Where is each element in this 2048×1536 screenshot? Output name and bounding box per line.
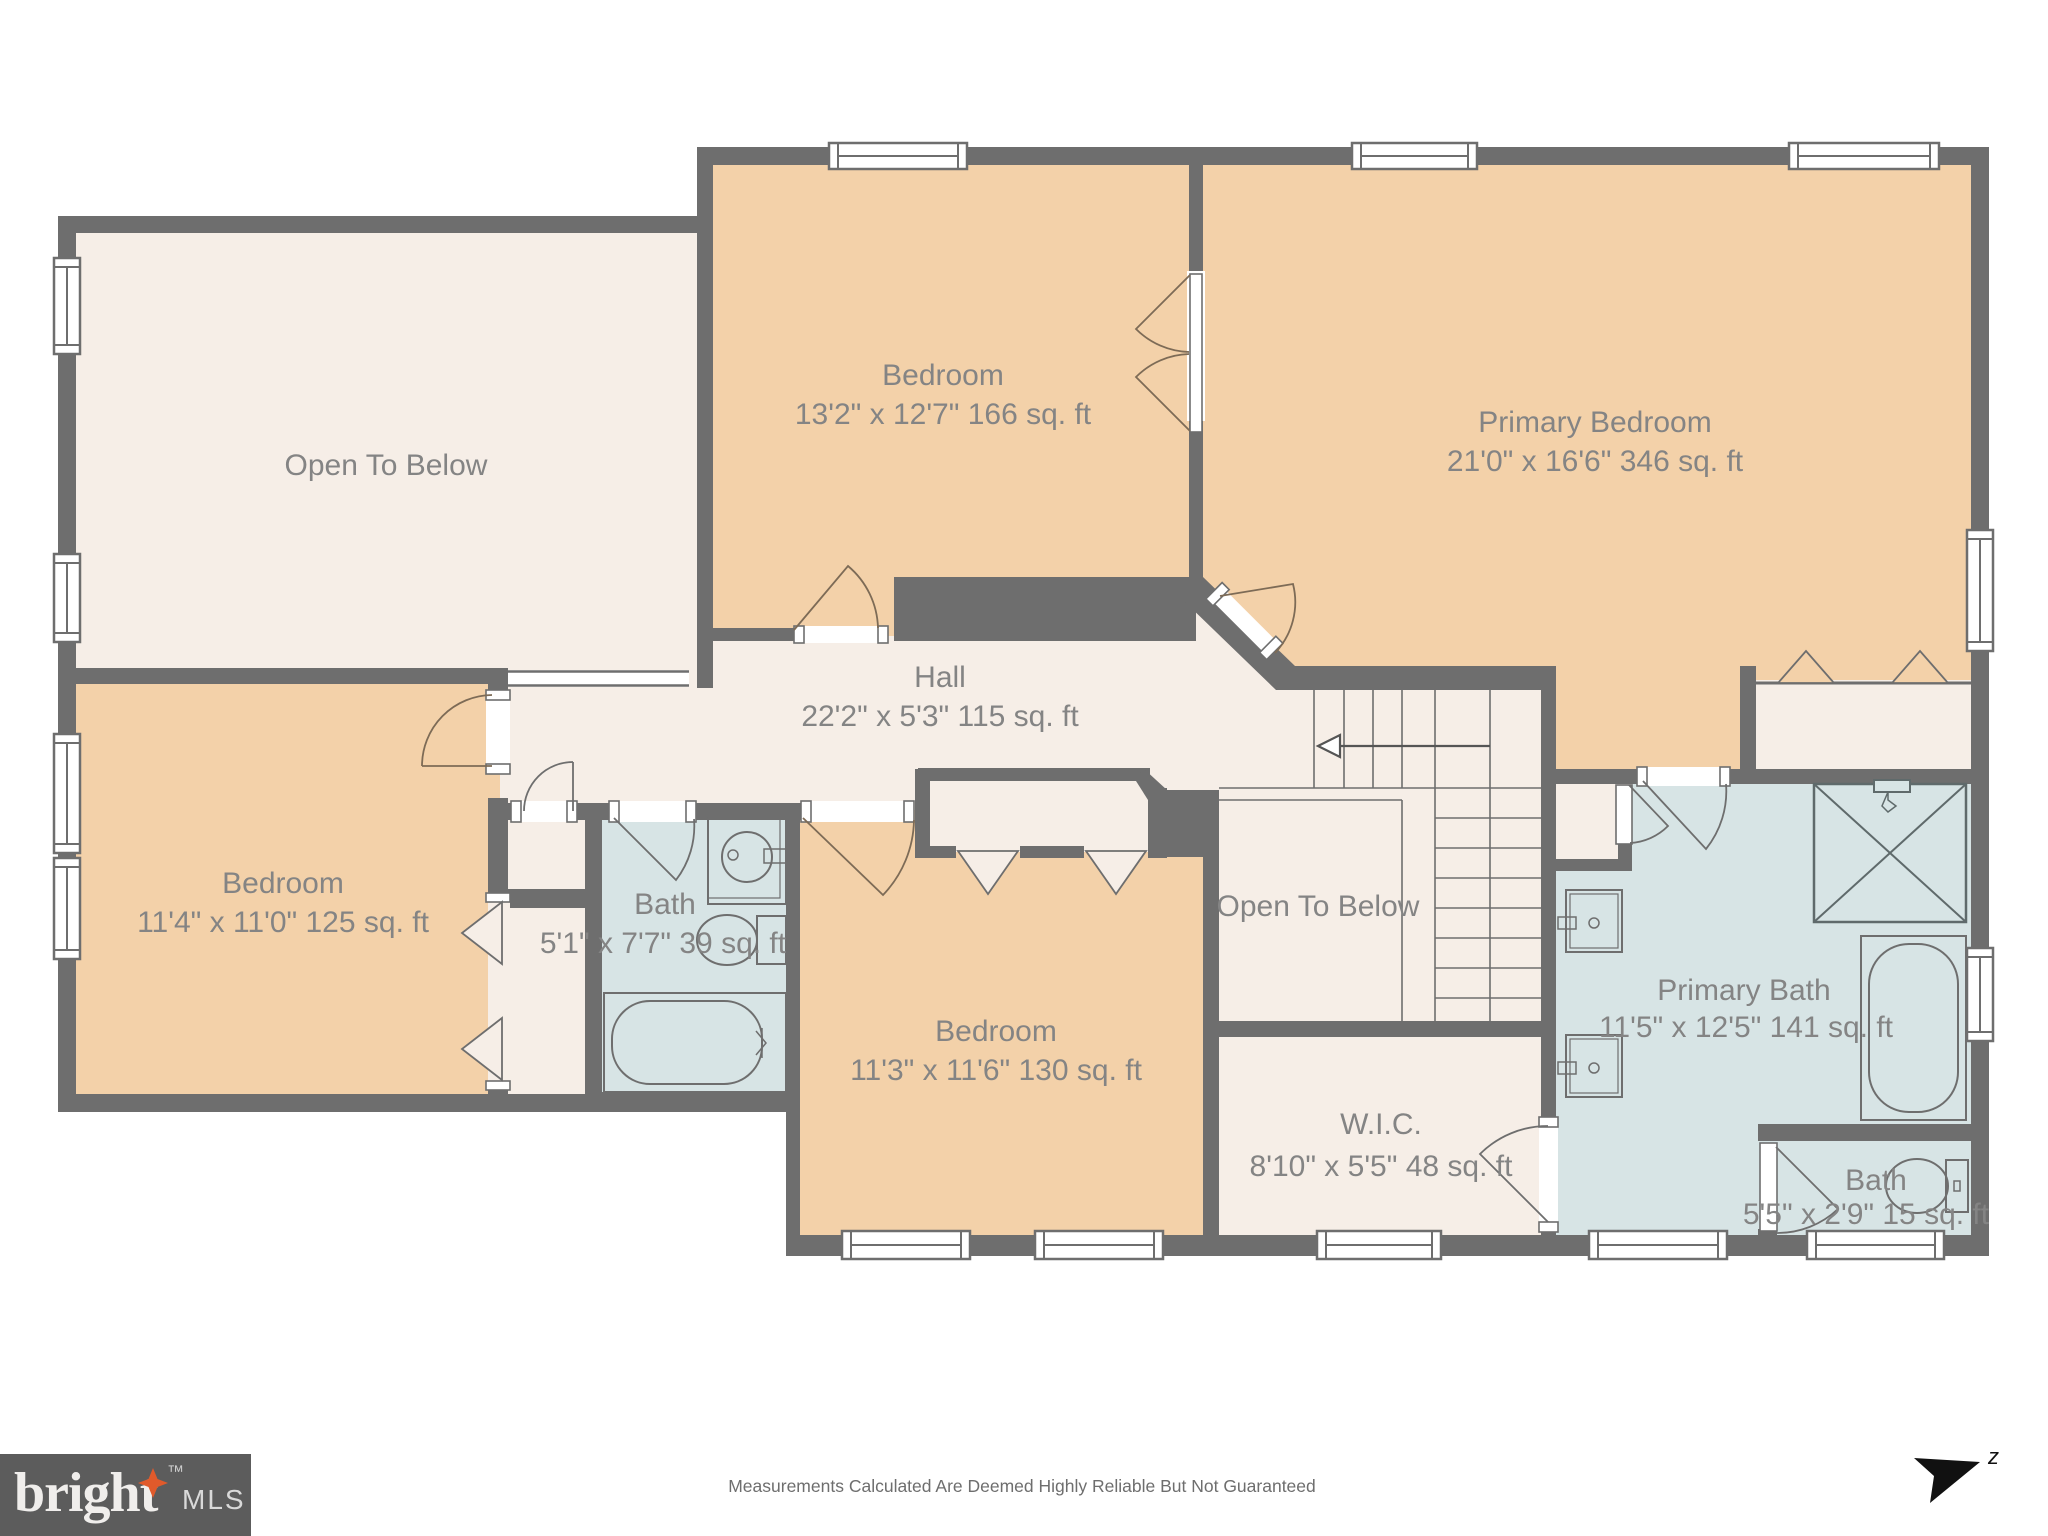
svg-text:Bedroom: Bedroom (935, 1015, 1057, 1048)
svg-text:Hall: Hall (914, 661, 966, 694)
svg-text:™: ™ (167, 1462, 184, 1481)
svg-text:Open To Below: Open To Below (285, 449, 488, 482)
svg-text:13'2" x 12'7" 166 sq. ft: 13'2" x 12'7" 166 sq. ft (795, 398, 1092, 431)
svg-text:Primary Bedroom: Primary Bedroom (1478, 406, 1711, 439)
svg-text:21'0" x 16'6" 346 sq. ft: 21'0" x 16'6" 346 sq. ft (1447, 445, 1744, 478)
svg-text:Open To Below: Open To Below (1217, 890, 1420, 923)
svg-text:Bath: Bath (634, 888, 696, 921)
svg-text:bright: bright (14, 1462, 159, 1524)
svg-text:22'2" x 5'3" 115 sq. ft: 22'2" x 5'3" 115 sq. ft (801, 700, 1079, 733)
svg-text:Bedroom: Bedroom (882, 359, 1004, 392)
svg-text:MLS: MLS (182, 1484, 246, 1515)
svg-text:W.I.C.: W.I.C. (1340, 1108, 1422, 1141)
svg-text:11'3" x 11'6" 130 sq. ft: 11'3" x 11'6" 130 sq. ft (850, 1054, 1142, 1087)
svg-text:Measurements Calculated Are De: Measurements Calculated Are Deemed Highl… (728, 1476, 1316, 1496)
svg-text:8'10" x 5'5" 48 sq. ft: 8'10" x 5'5" 48 sq. ft (1250, 1150, 1514, 1183)
svg-text:5'5" x 2'9" 15 sq. ft: 5'5" x 2'9" 15 sq. ft (1743, 1198, 1990, 1231)
svg-text:Bath: Bath (1845, 1164, 1907, 1197)
svg-text:5'1" x 7'7" 39 sq. ft: 5'1" x 7'7" 39 sq. ft (540, 927, 787, 960)
svg-text:Bedroom: Bedroom (222, 867, 344, 900)
svg-text:11'4" x 11'0" 125 sq. ft: 11'4" x 11'0" 125 sq. ft (137, 906, 429, 939)
svg-text:Primary Bath: Primary Bath (1657, 974, 1830, 1007)
svg-text:z: z (1987, 1444, 1999, 1469)
svg-text:11'5" x 12'5" 141 sq. ft: 11'5" x 12'5" 141 sq. ft (1599, 1011, 1894, 1044)
